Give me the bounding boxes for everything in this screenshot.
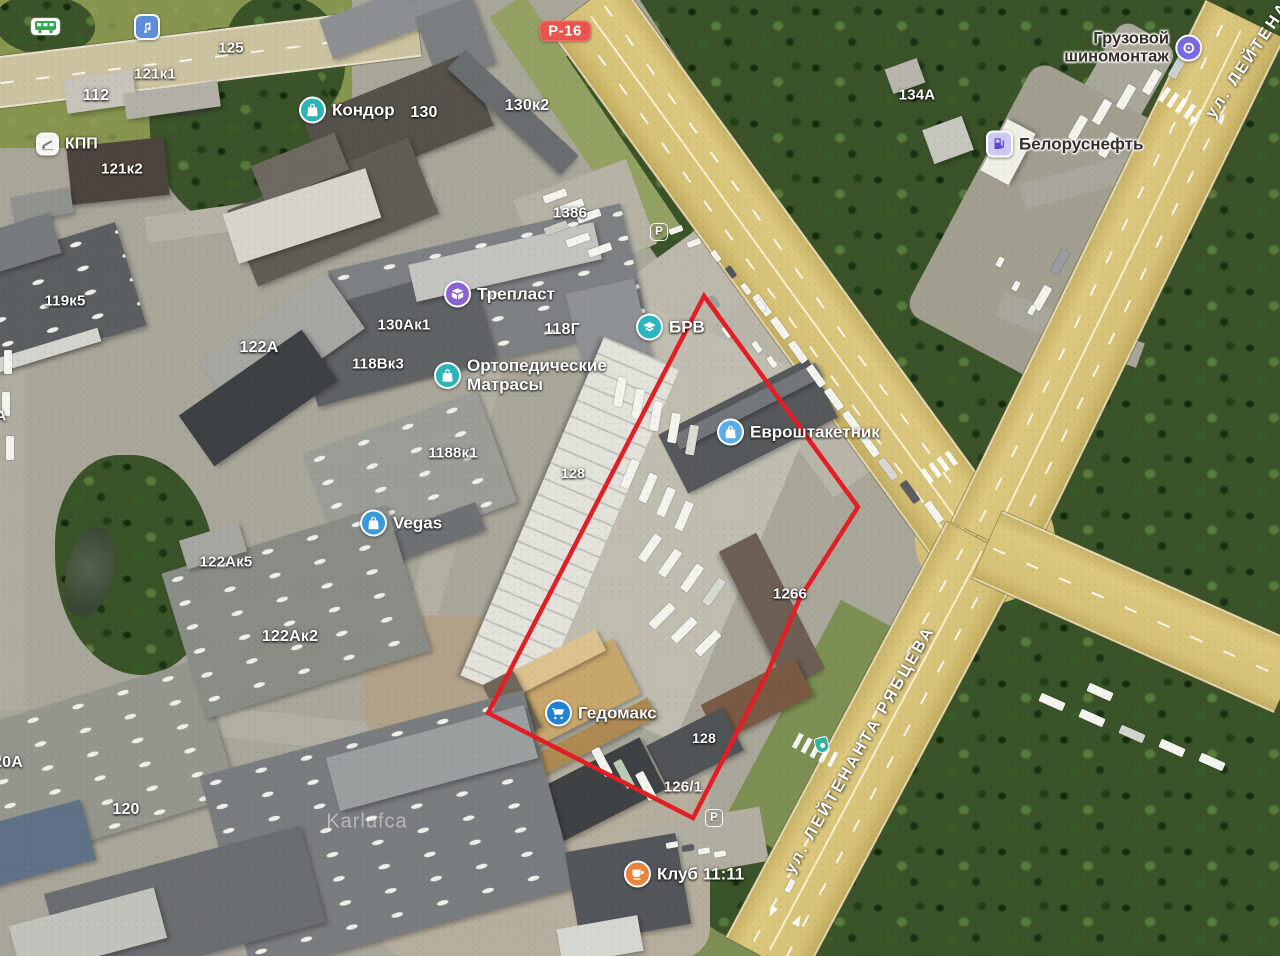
parking-icon[interactable]: Р [650,223,668,241]
layers-icon [636,314,663,341]
poi-label: Трепласт [477,284,555,303]
address-label[interactable]: 130Ак1 [366,0,419,2]
coffee-cup-icon [624,861,651,888]
bus-stop-icon[interactable] [30,17,61,41]
poi-label: Грузовойшиномонтаж [1064,30,1169,67]
shopping-bag-icon [717,419,744,446]
address-label[interactable]: 130Ак1 [378,317,431,334]
address-label[interactable]: 122А [239,339,278,357]
checkpoint-icon [36,133,59,156]
parking-icon[interactable]: Р [705,809,723,827]
address-label[interactable]: 1188к1 [428,445,478,462]
poi-label: Кондор [332,100,395,119]
watermark: Karlufca [326,811,407,834]
address-label[interactable]: 118Г [544,321,580,339]
address-label[interactable]: 119к5 [44,293,85,310]
address-label[interactable]: 121к2 [101,161,143,178]
poi-label: Vegas [393,513,442,532]
poi-ortopedicheskie-matrasy[interactable]: ОртопедическиеМатрасы [434,356,607,394]
shopping-bag-icon [299,97,326,124]
address-label[interactable]: А [0,408,7,425]
address-label[interactable]: 20А [0,754,23,772]
address-label[interactable]: 121к1 [134,66,176,83]
address-label[interactable]: 126/1 [664,779,703,796]
tire-icon [1175,35,1202,62]
address-label[interactable]: 118Вк3 [352,356,404,373]
address-label[interactable]: 128 [692,730,716,746]
poi-label: Белоруснефть [1019,134,1143,153]
poi-treplast[interactable]: Трепласт [444,281,555,308]
poi-label: КПП [65,135,98,153]
address-label[interactable]: 1386 [553,205,587,222]
poi-label: Клуб 11:11 [657,864,744,883]
shopping-bag-icon [360,510,387,537]
address-label[interactable]: 125 [218,40,244,57]
poi-gedomaks[interactable]: Гедомакс [545,700,657,727]
poi-label: БРВ [669,317,705,336]
address-label[interactable]: 130 [410,104,437,122]
poi-label: Гедомакс [578,703,657,722]
poi-belorusneft[interactable]: Белоруснефть [986,131,1143,158]
route-badge[interactable]: Р-16 [539,21,591,42]
address-label[interactable]: 122Ак5 [200,554,253,571]
poi-klub-11-11[interactable]: Клуб 11:11 [624,861,744,888]
poi-vegas[interactable]: Vegas [360,510,442,537]
poi-kpp[interactable]: КПП [36,133,98,156]
address-label[interactable]: 1266 [773,586,807,603]
fuel-pump-icon [986,131,1013,158]
poi-brv[interactable]: БРВ [636,314,705,341]
music-venue-icon[interactable] [134,14,160,40]
poi-label: Евроштакетник [750,422,880,441]
satellite-map[interactable]: Р Р 125 121к1 112 121к2 130 130к2 1386 1… [0,0,1280,956]
address-label[interactable]: 120 [112,801,139,819]
shopping-cart-icon [545,700,572,727]
address-label[interactable]: 130к2 [505,97,550,115]
address-label[interactable]: 112 [83,87,109,105]
address-label[interactable]: 128 [561,465,585,481]
poi-evroshtaketnik[interactable]: Евроштакетник [717,419,880,446]
address-label[interactable]: 122Ак2 [262,628,318,646]
address-label[interactable]: 134А [899,87,936,104]
poi-label: ОртопедическиеМатрасы [467,356,607,394]
shopping-bag-icon [434,362,461,389]
package-box-icon [444,281,471,308]
poi-kondor[interactable]: Кондор [299,97,395,124]
poi-gruzovoy-shinomontazh[interactable]: Грузовойшиномонтаж [1064,30,1202,67]
